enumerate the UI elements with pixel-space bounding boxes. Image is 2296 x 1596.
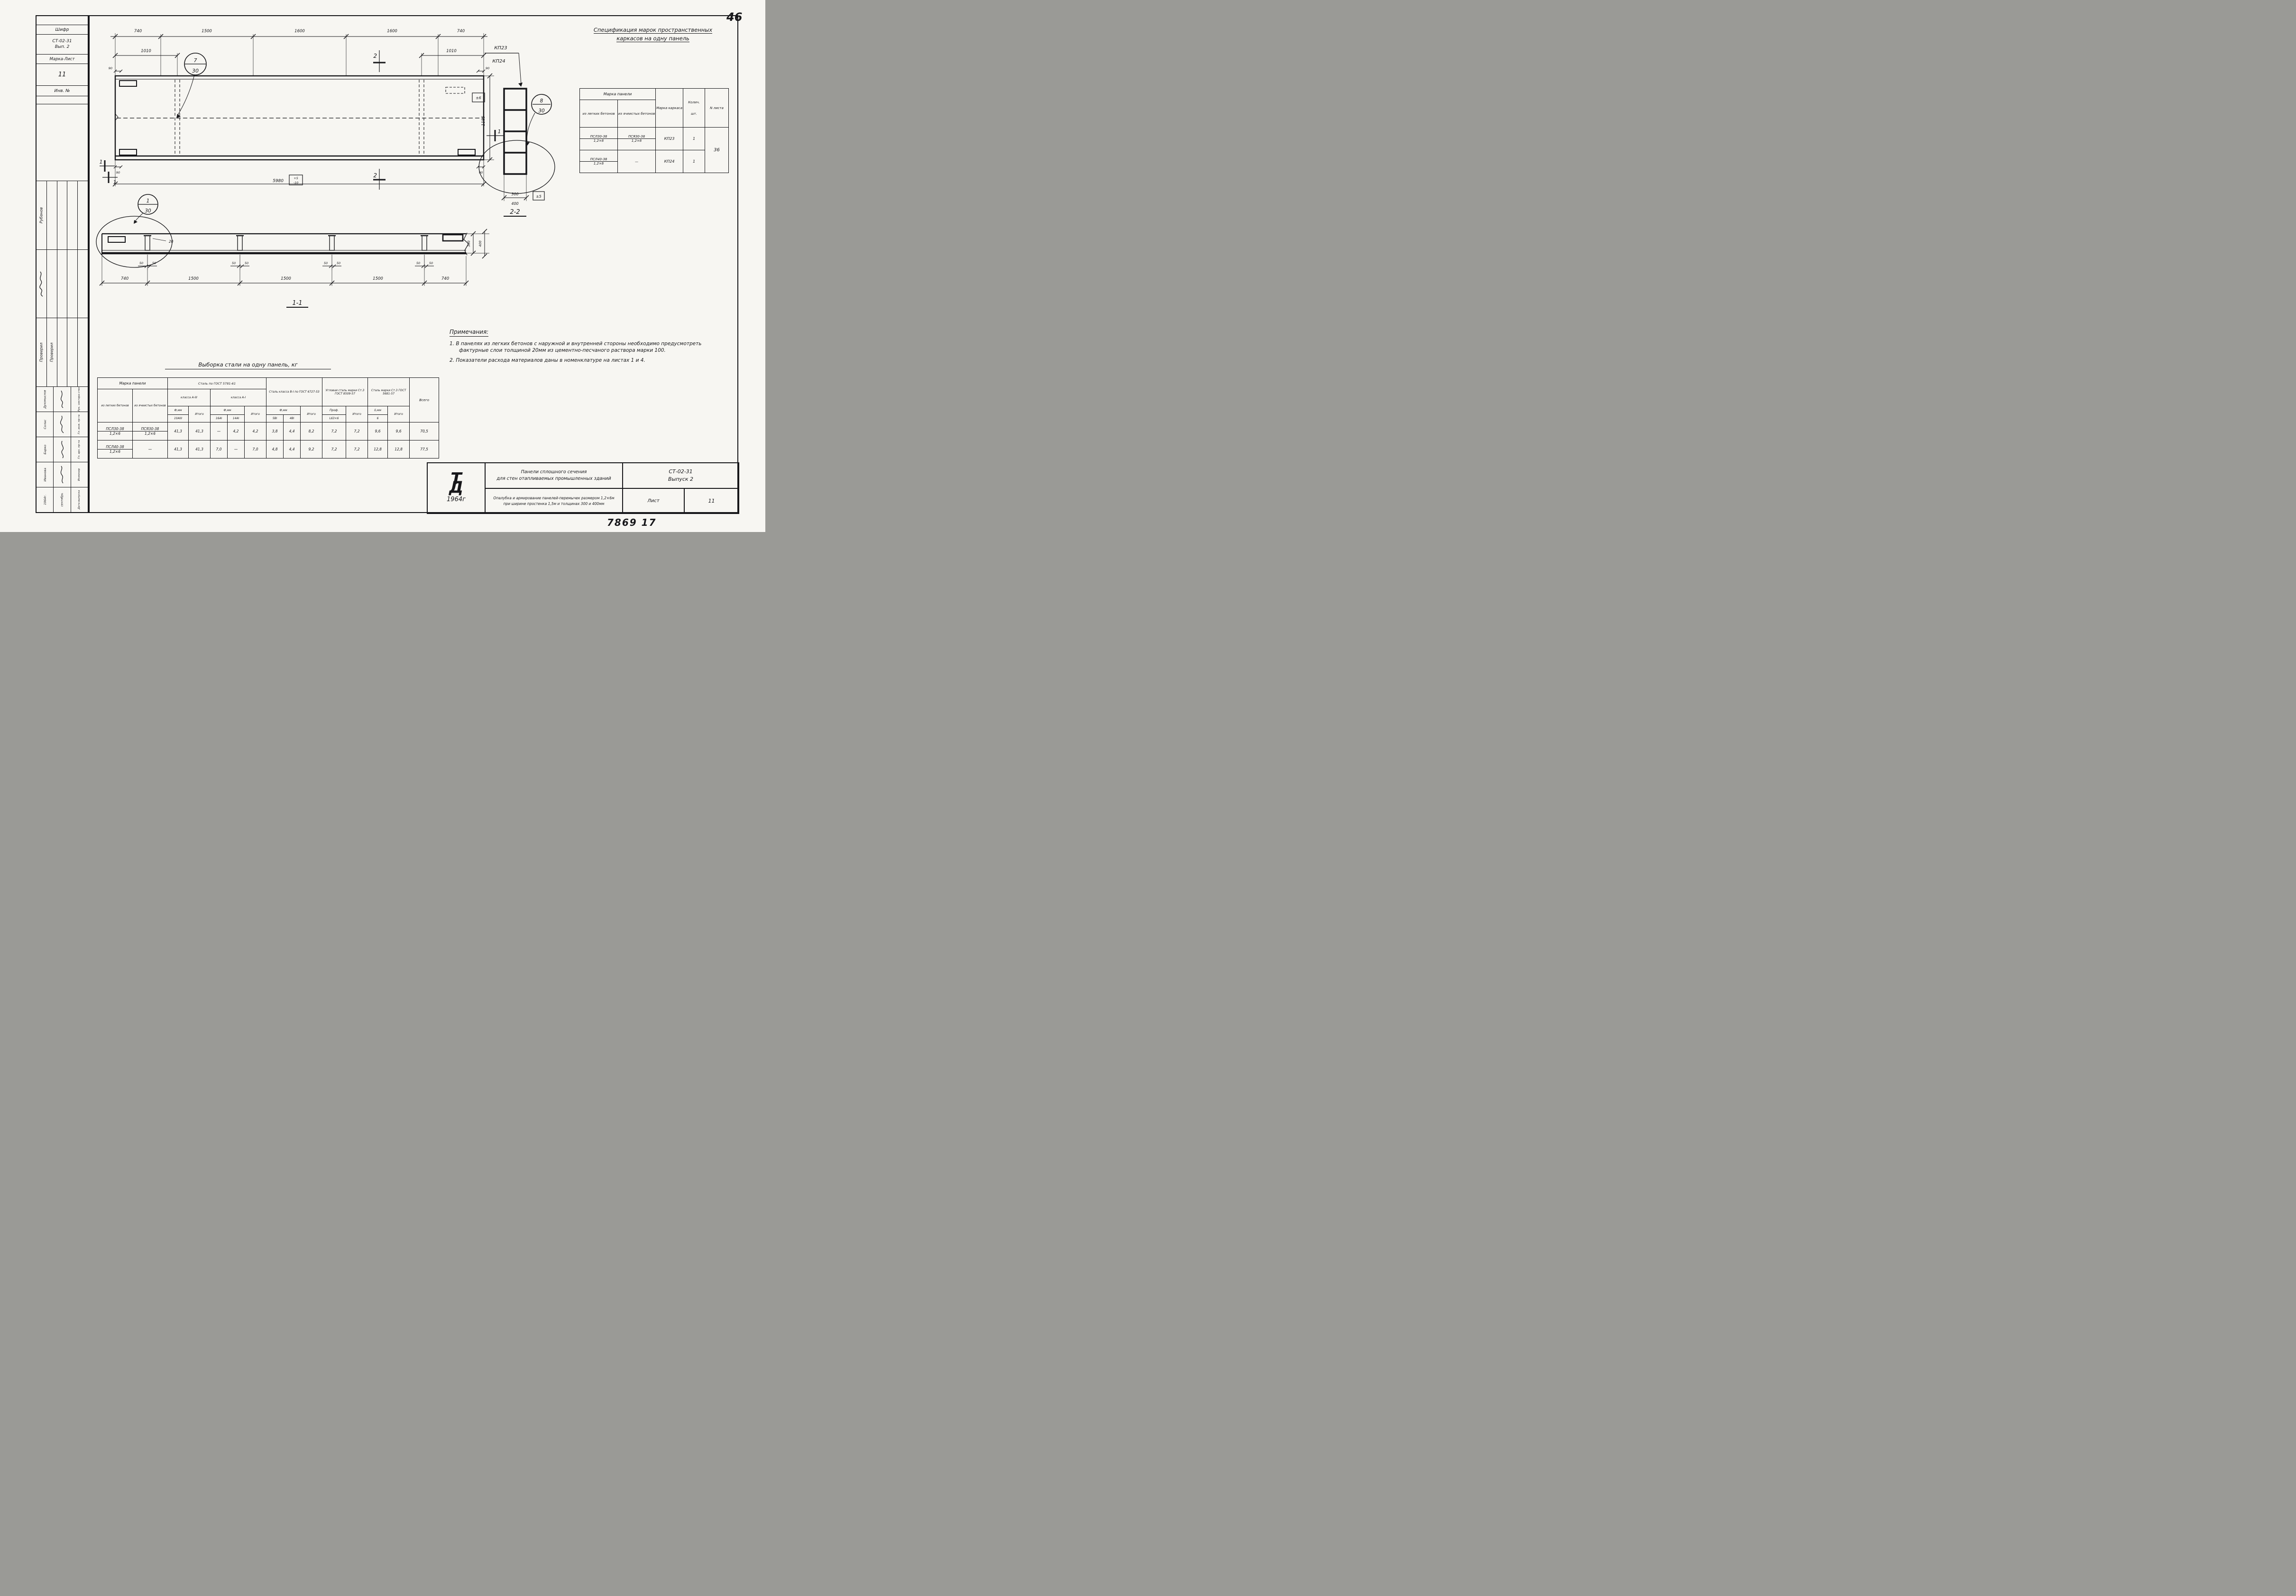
section-title: 1-1 — [292, 300, 302, 307]
steel-value: 7,2 — [346, 422, 368, 440]
title-block-sheet-title: Опалубка и армирование панелей-перемычек… — [485, 488, 623, 514]
steel-value: 12,8 — [388, 440, 410, 459]
dim-label: 1010 — [446, 49, 457, 54]
note-item-2: 2. Показатели расхода материалов даны в … — [450, 357, 729, 364]
spec-header-sheet: N листа — [705, 89, 729, 128]
plan-view: 740 1500 1600 1600 740 1010 1010 90 90 9… — [100, 29, 504, 190]
spec-cell-karkas: КП24 — [656, 150, 683, 173]
steel-cell-panel: — — [133, 440, 168, 459]
steel-value: 7,0 — [245, 440, 266, 459]
steel-header-ugol: Угловая сталь марки Ст.3 ГОСТ 8509-57 — [322, 378, 368, 406]
steel-value: 9,2 — [301, 440, 322, 459]
dim-label: 740 — [441, 276, 449, 281]
dim-label: 20 — [169, 239, 174, 244]
series-code: СТ-02-31 — [623, 468, 738, 476]
panel-size: 1,2×6 — [98, 449, 132, 454]
steel-value: 41,3 — [168, 440, 189, 459]
dim-label: 50 — [416, 261, 420, 265]
steel-value: 7,2 — [322, 440, 346, 459]
panel-size: 1,2×6 — [580, 162, 617, 165]
spec-cell-qty: 1 — [683, 150, 705, 173]
dim-label: 5980 — [273, 179, 284, 183]
notes-title: Примечания: — [450, 328, 488, 337]
panel-size: 1,2×6 — [618, 139, 655, 143]
series-issue: Выпуск 2 — [623, 476, 738, 484]
steel-header-vsego: Всего — [410, 378, 439, 422]
dim-label: 50 — [337, 261, 340, 265]
title-block-list-label: Лист — [623, 488, 684, 514]
steel-subheader-f: Ф,мм — [266, 406, 301, 415]
spec-cell-panel: ПСЯ30-38 1,2×6 — [618, 128, 656, 150]
title-block-list-value: 11 — [684, 488, 739, 514]
steel-header-a3: класса А-III — [168, 389, 211, 406]
steel-header-b1: Сталь класса В-I по ГОСТ 6727-53 — [266, 378, 322, 406]
project-title-line1: Панели сплошного сечения — [486, 469, 622, 476]
steel-value: 3,8 — [266, 422, 284, 440]
steel-value: — — [228, 440, 245, 459]
dim-label: 1600 — [294, 29, 305, 34]
callout-number: 7 — [194, 57, 197, 64]
spec-cell-sheet: 36 — [705, 128, 729, 173]
steel-dia: 10АIII — [168, 415, 189, 422]
section-2-2: КП23 КП24 8 30 300 400 ±5 2-2 — [479, 46, 555, 216]
spec-cell-panel: — — [618, 150, 656, 173]
section-mark-label: 1 — [100, 159, 103, 165]
steel-value: 41,3 — [168, 422, 189, 440]
steel-header-st3: Сталь марки Ст.3 ГОСТ 5681-57 — [368, 378, 410, 406]
fifty-dims: 50 50 50 50 50 50 50 50 — [138, 255, 434, 270]
dim-label: 1500 — [281, 276, 291, 281]
dim-label: 50 — [139, 261, 143, 265]
steel-header-cellular: из ячеистых бетонов — [133, 389, 168, 422]
notes-block: Примечания: 1. В панелях из легких бетон… — [450, 328, 729, 367]
steel-cell-panel: ПСЯ30-38 1,2×6 — [133, 422, 168, 440]
panel-mark: ПСЛ40-38 — [98, 445, 132, 449]
spec-header-light: из легких бетонов — [580, 100, 618, 128]
section-mark-label: 1 — [498, 128, 501, 135]
panel-size: 1,2×6 — [98, 431, 132, 436]
steel-value: 77,5 — [410, 440, 439, 459]
org-logo: Т Д — [428, 473, 485, 494]
steel-value: 12,8 — [368, 440, 388, 459]
dim-label: 1185 — [481, 116, 486, 126]
stamp-number: 7869 17 — [607, 517, 656, 528]
spec-cell-karkas: КП23 — [656, 128, 683, 150]
dim-label: 400 — [511, 202, 518, 206]
dim-label: 740 — [121, 276, 129, 281]
title-block: Т Д 1964г Панели сплошного сечения для с… — [427, 462, 739, 514]
spec-header-karkas: Марка каркаса — [656, 89, 683, 128]
panel-mark: ПСЛ30-38 — [98, 427, 132, 431]
dim-label: 90 — [486, 66, 489, 70]
dim-label: 740 — [134, 29, 142, 34]
steel-subheader-b: δ,мм — [368, 406, 388, 415]
spec-header-qty: Колич. шт. — [683, 89, 705, 128]
panel-mark: ПСЛ40-38 — [580, 157, 617, 162]
steel-value: 4,2 — [228, 422, 245, 440]
sheet-title-line2: при ширине простенка 1,5м и толщинах 300… — [486, 501, 622, 506]
spec-header-cellular: из ячеистых бетонов — [618, 100, 656, 128]
spec-table-title-line1: Спецификация марок пространственных — [594, 27, 712, 34]
steel-value: 7,2 — [322, 422, 346, 440]
spec-header-qty-top: Колич. — [683, 101, 705, 104]
steel-value: 9,6 — [368, 422, 388, 440]
dim-label: 300 — [511, 192, 518, 196]
steel-value: — — [211, 422, 228, 440]
title-block-code-cell: СТ-02-31 Выпуск 2 — [623, 463, 739, 488]
steel-header-light: из легких бетонов — [98, 389, 133, 422]
callout-number: 8 — [540, 98, 543, 104]
callout-number: 1 — [147, 198, 150, 204]
panel-mark: ПСЯ30-38 — [133, 427, 167, 431]
callout-number: 30 — [538, 108, 545, 114]
dim-label: 90 — [109, 66, 112, 70]
note-item-1: 1. В панелях из легких бетонов с наружно… — [450, 340, 729, 354]
steel-value: 70,5 — [410, 422, 439, 440]
steel-subheader-f: Ф,мм — [211, 406, 245, 415]
steel-header-gost5781: Сталь по ГОСТ 5781-61 — [168, 378, 266, 389]
steel-value: 4,8 — [266, 440, 284, 459]
dim-label: 50 — [429, 261, 433, 265]
steel-value: 4,2 — [245, 422, 266, 440]
panel-mark: ПСЛ30-38 — [580, 135, 617, 139]
spec-table: Марка панели Марка каркаса Колич. шт. N … — [579, 88, 729, 173]
steel-subheader-itogo: Итого — [245, 406, 266, 422]
steel-subheader-itogo: Итого — [388, 406, 410, 422]
steel-subheader-itogo: Итого — [189, 406, 211, 422]
spec-header-qty-bottom: шт. — [683, 112, 705, 116]
steel-value: 9,6 — [388, 422, 410, 440]
tolerance-label: ±5 — [536, 194, 542, 199]
steel-dia: 4ВI — [284, 415, 301, 422]
steel-value: 8,2 — [301, 422, 322, 440]
title-block-project-title: Панели сплошного сечения для стен отапли… — [485, 463, 623, 488]
dim-label: 400 — [478, 240, 482, 247]
panel-size: 1,2×6 — [133, 431, 167, 436]
title-block-year: 1964г — [428, 496, 485, 503]
dim-label: 1500 — [373, 276, 383, 281]
spec-cell-qty: 1 — [683, 128, 705, 150]
title-block-logo-cell: Т Д 1964г — [427, 463, 485, 514]
karkas-label: КП23 — [494, 46, 507, 51]
spec-cell-panel: ПСЛ40-38 1,2×6 — [580, 150, 618, 173]
stirrup-posts — [144, 236, 428, 250]
steel-value: 41,3 — [189, 422, 211, 440]
drawing-sheet: 46 Шифр СТ-02-31 Вып. 2 Марка-Лист 11 Ин… — [0, 0, 765, 532]
tolerance-label: -10 — [294, 181, 299, 185]
steel-header-a1: класса А-I — [211, 389, 266, 406]
spec-table-title-line2: каркасов на одну панель — [616, 35, 689, 42]
org-logo-d: Д — [428, 482, 485, 493]
callout-number: 30 — [145, 208, 151, 214]
spec-cell-panel: ПСЛ30-38 1,2×6 — [580, 128, 618, 150]
tolerance-label: ±6 — [476, 96, 481, 100]
steel-cell-panel: ПСЛ30-38 1,2×6 — [98, 422, 133, 440]
dim-label: 50 — [245, 261, 248, 265]
steel-dia: 14АI — [228, 415, 245, 422]
steel-cell-panel: ПСЛ40-38 1,2×6 — [98, 440, 133, 459]
dim-label: 1500 — [202, 29, 212, 34]
steel-profile: L63×6 — [322, 415, 346, 422]
steel-thickness: 6 — [368, 415, 388, 422]
dim-label: 50 — [232, 261, 236, 265]
steel-subheader-prof: Проф. — [322, 406, 346, 415]
dim-label: 50 — [324, 261, 328, 265]
steel-value: 7,2 — [346, 440, 368, 459]
section-mark-label: 2 — [373, 53, 377, 59]
karkas-label: КП24 — [492, 59, 505, 64]
steel-header-marka: Марка панели — [98, 378, 168, 389]
section-mark-label: 2 — [373, 172, 377, 179]
steel-subheader-itogo: Итого — [346, 406, 368, 422]
dim-label: 300 — [467, 240, 471, 247]
steel-table-title: Выборка стали на одну панель, кг — [165, 361, 331, 369]
callout-number: 30 — [192, 68, 199, 74]
steel-value: 7,0 — [211, 440, 228, 459]
tolerance-label: +5 — [294, 176, 298, 180]
dim-label: 90 — [116, 171, 120, 174]
section-mark-label: 1 — [113, 179, 117, 185]
steel-value: 4,4 — [284, 440, 301, 459]
steel-subheader-itogo: Итого — [301, 406, 322, 422]
steel-value: 4,4 — [284, 422, 301, 440]
spec-header-marka: Марка панели — [580, 89, 656, 100]
dim-label: 1500 — [188, 276, 199, 281]
panel-mark: ПСЯ30-38 — [618, 135, 655, 139]
spec-table-title: Спецификация марок пространственных карк… — [565, 26, 741, 43]
section-title: 2-2 — [510, 209, 520, 216]
panel-size: 1,2×6 — [580, 139, 617, 143]
dim-label: 1010 — [141, 49, 151, 54]
steel-subheader-f: Ф,мм — [168, 406, 189, 415]
sheet-title-line1: Опалубка и армирование панелей-перемычек… — [486, 495, 622, 501]
steel-dia: 16АI — [211, 415, 228, 422]
steel-dia: 5ВI — [266, 415, 284, 422]
steel-table: Марка панели Сталь по ГОСТ 5781-61 Сталь… — [97, 377, 439, 459]
dim-label: 1600 — [387, 29, 397, 34]
section-1-1: 20 50 50 50 50 50 50 50 50 300 400 — [96, 194, 489, 307]
project-title-line2: для стен отапливаемых промышленных здани… — [486, 476, 622, 482]
steel-value: 41,3 — [189, 440, 211, 459]
dim-label: 740 — [457, 29, 465, 34]
